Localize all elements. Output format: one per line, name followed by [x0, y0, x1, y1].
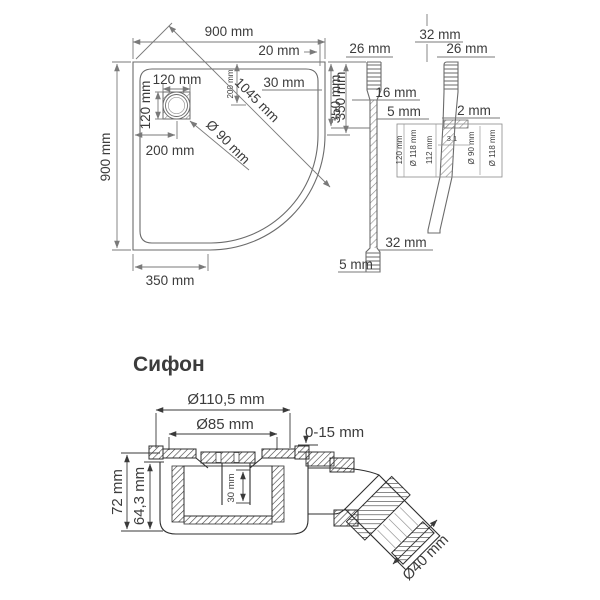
label-siphon-adjust: 0-15 mm	[305, 424, 364, 441]
label-right-gap: 2 mm	[457, 103, 491, 118]
label-height-left: 900 mm	[98, 133, 113, 182]
label-detail-inner-height: 112 mm	[425, 136, 434, 165]
label-left-top-thickness: 26 mm	[349, 41, 390, 56]
dim-left-step: 16 mm	[352, 85, 420, 100]
label-drain-from-left: 200 mm	[146, 143, 195, 158]
dim-drain-diameter: Ø 90 mm	[190, 117, 253, 170]
section-left-wall	[370, 100, 377, 248]
label-siphon-grate-dia: Ø85 mm	[196, 416, 254, 433]
label-detail-outer-dia: Ø 118 mm	[409, 129, 418, 166]
siphon-flange-assembly	[149, 446, 309, 468]
dim-left-lip: 5 mm	[377, 104, 429, 119]
dim-right-top-edge: 26 mm	[437, 41, 495, 57]
tray-section-right: 32 mm 26 mm 2 mm 120 mm Ø 118 mm 112 mm …	[395, 14, 502, 233]
drawing-svg: 900 mm 20 mm 120 mm 200 mm 30 mm	[0, 0, 600, 600]
dim-siphon-grate-dia: Ø85 mm	[169, 416, 277, 450]
dim-height-left: 900 mm	[98, 62, 131, 250]
label-detail-slope: 3.1	[447, 134, 457, 143]
label-siphon-outer-dia: Ø110,5 mm	[187, 391, 264, 408]
label-left-upper-span: 350 mm	[333, 72, 348, 121]
tray-top-view: 900 mm 20 mm 120 mm 200 mm 30 mm	[98, 23, 350, 288]
dim-bottom-straight: 350 mm	[133, 254, 208, 288]
dim-inner-rim-right: 30 mm	[262, 75, 322, 90]
dim-right-gap: 2 mm	[442, 103, 500, 118]
label-siphon-total-height: 72 mm	[109, 469, 126, 515]
section-right-top-cap	[444, 64, 458, 90]
label-drain-height: 120 mm	[138, 81, 153, 130]
label-rim-top-right: 20 mm	[258, 43, 299, 58]
label-inner-rim-right: 30 mm	[263, 75, 304, 90]
dim-left-lower-span: 32 mm	[378, 235, 433, 250]
label-bottom-straight: 350 mm	[146, 273, 195, 288]
dim-left-top-thickness: 26 mm	[346, 41, 393, 57]
siphon-section: Сифон Ø110,5 mm Ø85 mm 0-15 mm	[109, 353, 452, 584]
label-left-lower-span: 32 mm	[385, 235, 426, 250]
dim-siphon-body-height: 64,3 mm	[131, 462, 164, 529]
label-left-bottom-lip: 5 mm	[339, 257, 373, 272]
dim-siphon-cup-depth: 30 mm	[226, 470, 250, 503]
label-drain-width: 120 mm	[153, 72, 202, 87]
dim-drain-height: 120 mm	[138, 81, 163, 130]
label-width-top: 900 mm	[205, 24, 254, 39]
dim-drain-width: 120 mm	[153, 72, 202, 92]
label-drain-diameter: Ø 90 mm	[203, 117, 253, 167]
label-detail-height: 120 mm	[395, 135, 404, 164]
label-detail-drain-dia: Ø 90 mm	[467, 131, 476, 164]
label-left-step: 16 mm	[375, 85, 416, 100]
label-left-lip: 5 mm	[387, 104, 421, 119]
label-right-top-edge: 26 mm	[446, 41, 487, 56]
label-right-top-span: 32 mm	[419, 27, 460, 42]
label-detail-outer-dia2: Ø 118 mm	[488, 129, 497, 166]
label-siphon-cup-depth: 30 mm	[226, 473, 237, 502]
technical-drawing-page: 900 mm 20 mm 120 mm 200 mm 30 mm	[0, 0, 600, 600]
siphon-grate	[201, 452, 255, 463]
dim-left-upper-span: 350 mm	[331, 62, 370, 128]
label-siphon-body-height: 64,3 mm	[131, 467, 148, 525]
siphon-title: Сифон	[133, 353, 205, 376]
drain-top-view	[163, 92, 190, 119]
